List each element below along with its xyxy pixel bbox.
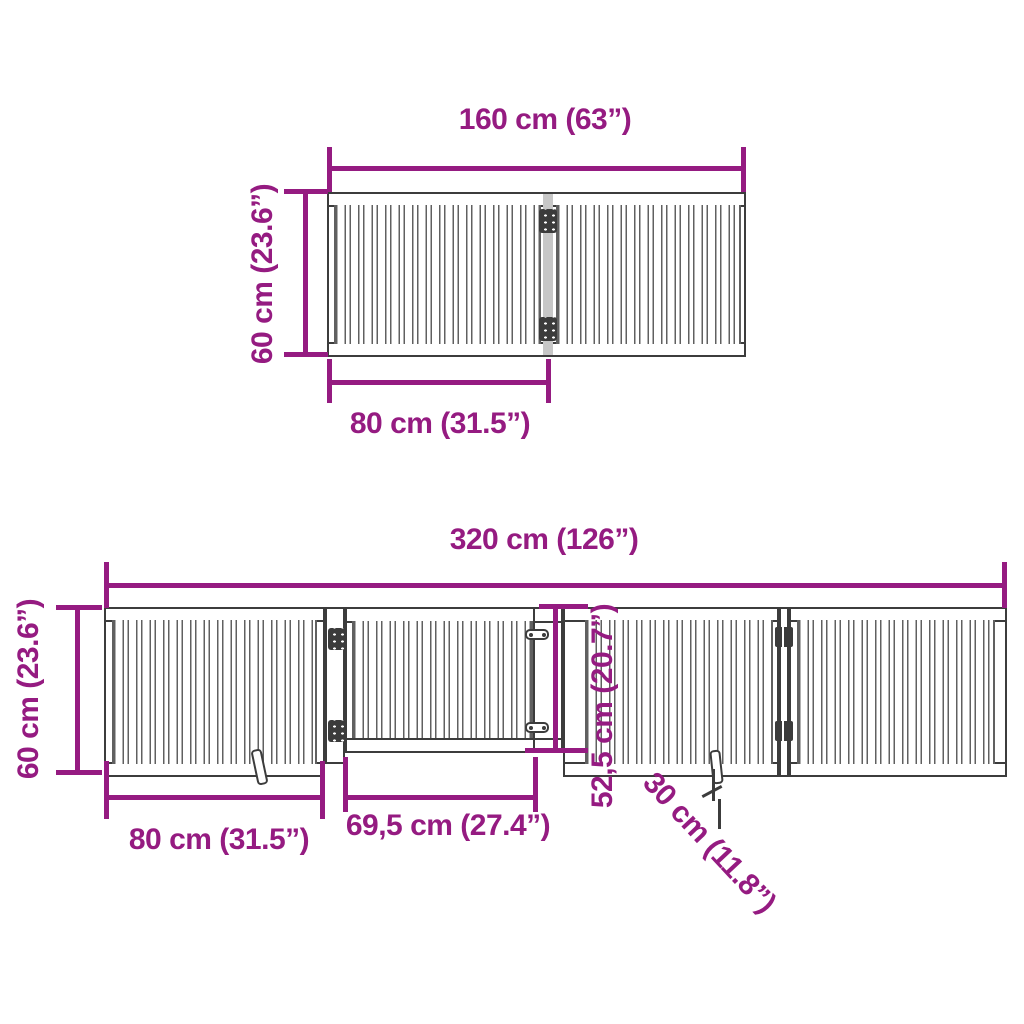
hinge-icon	[775, 627, 793, 647]
dim-cap-bottom-52-5	[525, 748, 588, 753]
gate-panel-right-slats	[556, 205, 741, 344]
dim-tick-left-69-5	[343, 757, 348, 812]
hinge-icon	[328, 628, 346, 650]
dim-line-52-5	[553, 604, 558, 753]
dim-line-160	[327, 166, 746, 171]
door-slats	[352, 621, 533, 738]
panel-1-slats	[112, 620, 317, 764]
hinge-icon	[539, 209, 557, 233]
dim-line-80-top	[327, 380, 551, 385]
dim-tick-left-80-bottom	[104, 761, 109, 819]
dim-label-height-bottom: 60 cm (23.6”)	[12, 599, 46, 779]
gate-panel-left-slats	[334, 205, 541, 344]
dim-tick-right-80-bottom	[320, 761, 325, 819]
latch-icon	[525, 629, 549, 640]
hinge-icon	[328, 720, 346, 742]
dim-label-height-top: 60 cm (23.6”)	[246, 184, 280, 364]
dim-line-60-bottom	[75, 605, 80, 775]
dim-tick-right-69-5	[533, 757, 538, 812]
dim-label-door-height: 52,5 cm (20.7”)	[586, 604, 620, 808]
dim-line-60-top	[303, 189, 308, 357]
dim-line-69-5	[343, 795, 538, 800]
dim-label-panel-width-top: 80 cm (31.5”)	[350, 407, 530, 441]
dim-label-panel-width-bottom: 80 cm (31.5”)	[129, 823, 309, 857]
dim-cap-top-52-5	[539, 604, 588, 609]
dimension-diagram-sheet: 160 cm (63”) 60 cm (23.6”) 80 cm (31.5”)…	[0, 0, 1024, 1024]
dim-label-door-width: 69,5 cm (27.4”)	[346, 809, 550, 843]
door-bottom-rail-line	[347, 738, 561, 740]
dim-label-foot-depth: 30 cm (11.8”)	[636, 766, 783, 920]
hinge-icon	[539, 317, 557, 341]
gate-panel-1	[104, 607, 325, 777]
gate-2-panel	[327, 192, 746, 357]
dim-label-total-width-bottom: 320 cm (126”)	[450, 523, 639, 557]
dim-label-total-width-top: 160 cm (63”)	[459, 103, 631, 137]
dim-line-80-bottom	[104, 795, 325, 800]
dim-line-320	[104, 583, 1007, 588]
gate-panel-4	[789, 607, 1007, 777]
panel-4-slats	[797, 620, 995, 764]
foot-leader-line	[712, 769, 715, 801]
latch-icon	[525, 722, 549, 733]
foot-leader-line	[718, 799, 721, 829]
hinge-icon	[775, 721, 793, 741]
